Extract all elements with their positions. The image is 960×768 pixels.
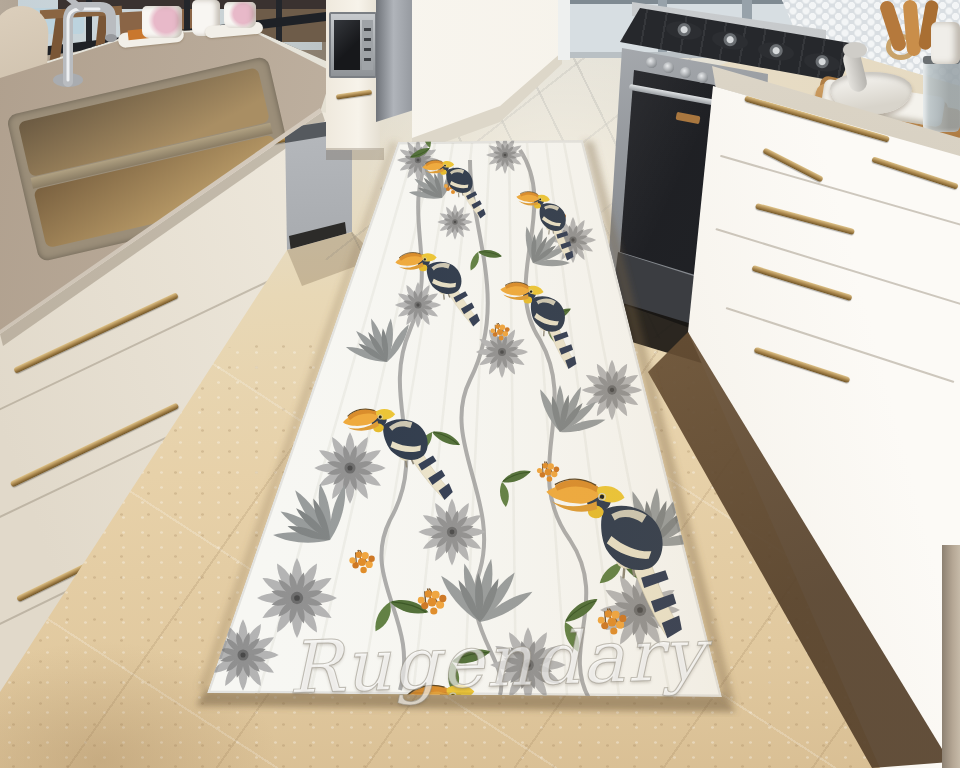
kitchen-scene: Rugendary [0, 0, 960, 768]
watermark: Rugendary [287, 615, 694, 708]
